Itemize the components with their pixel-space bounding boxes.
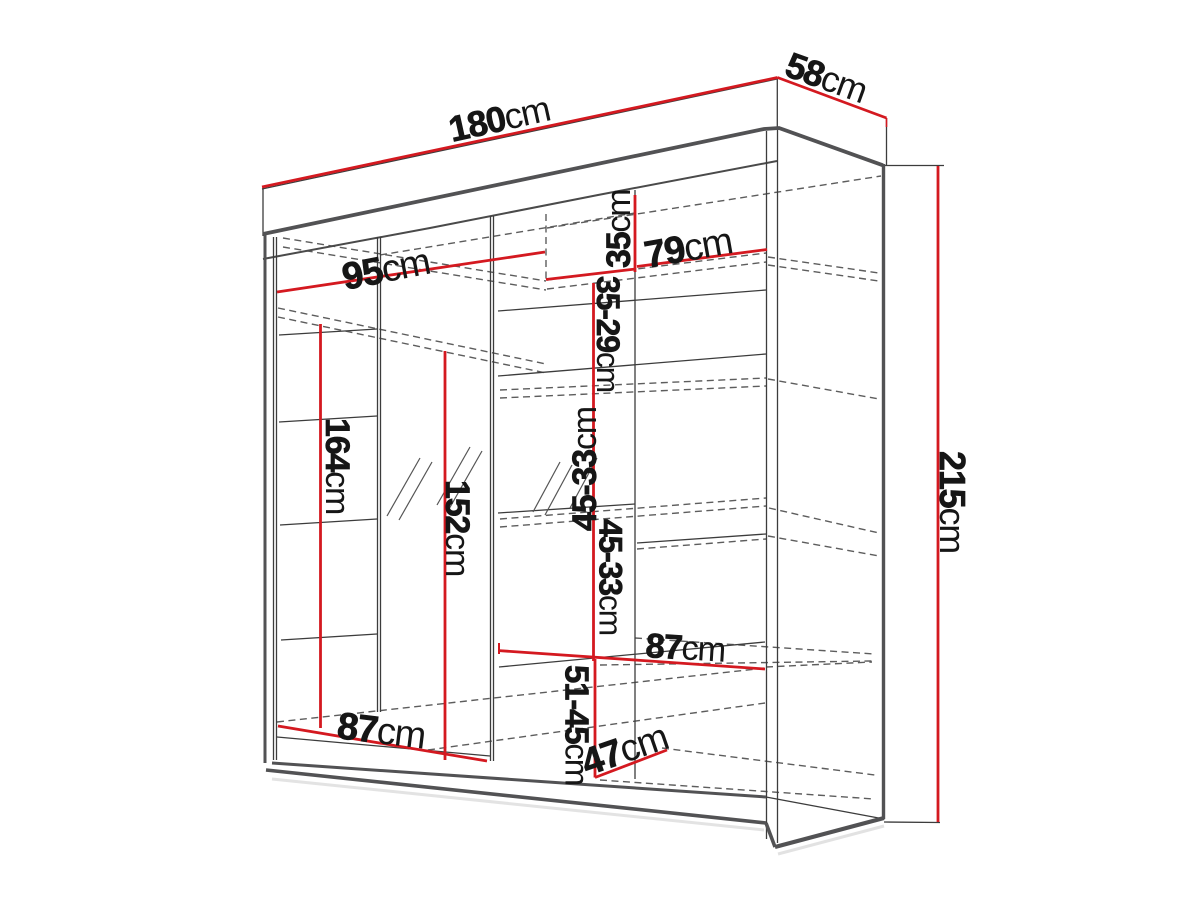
svg-text:35cm: 35cm: [600, 190, 638, 268]
svg-text:87cm: 87cm: [645, 627, 727, 670]
svg-text:152cm: 152cm: [438, 480, 476, 576]
svg-text:215cm: 215cm: [932, 451, 973, 553]
svg-text:164cm: 164cm: [318, 418, 356, 514]
svg-text:35-29cm: 35-29cm: [590, 276, 626, 392]
svg-text:51-45cm: 51-45cm: [559, 665, 596, 785]
svg-text:45-33cm: 45-33cm: [566, 407, 604, 531]
svg-text:45-33cm: 45-33cm: [593, 519, 629, 635]
